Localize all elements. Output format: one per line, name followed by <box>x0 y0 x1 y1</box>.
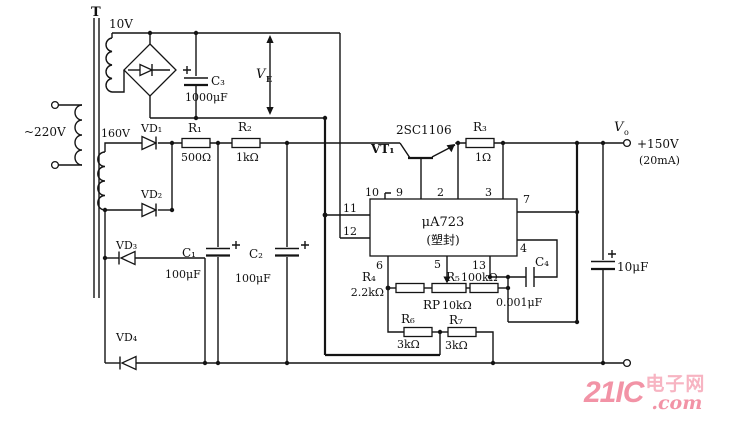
rp-value: 10kΩ <box>442 299 472 312</box>
r1-label: R₁ <box>188 121 202 135</box>
bridge-rectifier <box>124 44 176 96</box>
pin10-mark <box>385 193 391 199</box>
output-terminal-negative <box>624 360 631 367</box>
pin3-label: 3 <box>485 186 492 199</box>
circuit-schematic: T 10V ~220V 160V VD₁ VD₂ VD₃ VD₄ R₁ 500Ω… <box>0 0 733 424</box>
vo-subscript: o <box>624 128 629 137</box>
r5-label: R₅ <box>446 270 460 284</box>
c1-value: 100μF <box>165 268 201 281</box>
ic-name: μA723 <box>422 215 465 230</box>
vt1-part-number: 2SC1106 <box>396 123 452 137</box>
r7-label: R₇ <box>449 313 463 327</box>
diode-vd1 <box>142 137 156 150</box>
pin4-label: 4 <box>520 242 527 255</box>
mains-voltage: ~220V <box>24 125 66 139</box>
vd2-label: VD₂ <box>140 188 162 201</box>
primary-winding <box>75 105 82 165</box>
c3-value: 1000μF <box>185 91 228 104</box>
transformer <box>52 18 112 298</box>
rp-label: RP <box>423 298 440 312</box>
resistor-r3 <box>466 139 494 148</box>
r5-value: 100kΩ <box>461 271 498 284</box>
transistor-vt1 <box>408 144 455 158</box>
r4-value: 2.2kΩ <box>351 286 384 299</box>
capacitor-c2 <box>275 241 309 256</box>
c1-label: C₁ <box>182 246 196 260</box>
vd4-label: VD₄ <box>115 331 138 344</box>
r6-label: R₆ <box>401 312 415 326</box>
vt1-label: VT₁ <box>370 142 395 156</box>
output-current: (20mA) <box>639 154 680 167</box>
pin9-label: 9 <box>396 186 403 199</box>
ac-terminal-bottom <box>52 162 59 169</box>
pin5-label: 5 <box>434 258 441 271</box>
c4-value: 0.001μF <box>496 296 543 309</box>
schematic-page: T 10V ~220V 160V VD₁ VD₂ VD₃ VD₄ R₁ 500Ω… <box>0 0 733 424</box>
labels: T 10V ~220V 160V VD₁ VD₂ VD₃ VD₄ R₁ 500Ω… <box>24 5 680 352</box>
output-cap-value: 10μF <box>617 260 648 274</box>
resistor-r2 <box>232 139 260 148</box>
resistor-r6 <box>404 328 432 337</box>
pin7-label: 7 <box>523 193 530 206</box>
potentiometer-rp <box>432 284 466 293</box>
capacitor-c4 <box>526 267 534 287</box>
diode-vd3 <box>119 252 135 265</box>
pin2-label: 2 <box>437 186 444 199</box>
r1-value: 500Ω <box>181 151 211 164</box>
pin6-label: 6 <box>376 259 383 272</box>
c2-label: C₂ <box>249 247 263 261</box>
ic-package: (塑封) <box>426 232 459 247</box>
diode-vd2 <box>142 204 156 217</box>
r7-value: 3kΩ <box>445 339 468 352</box>
aux-winding-voltage: 10V <box>109 17 133 31</box>
resistor-r5 <box>470 284 498 293</box>
capacitor-c1 <box>206 241 240 256</box>
output-terminal-positive <box>624 140 631 147</box>
r3-label: R₃ <box>473 120 487 134</box>
resistor-r1 <box>182 139 210 148</box>
r2-label: R₂ <box>238 120 252 134</box>
hv-winding-voltage: 160V <box>101 127 131 140</box>
ac-terminal-top <box>52 102 59 109</box>
ve-subscript: E <box>266 74 272 84</box>
transformer-label: T <box>91 5 101 20</box>
resistor-r4 <box>396 284 424 293</box>
pin12-label: 12 <box>343 225 357 238</box>
c2-value: 100μF <box>235 272 271 285</box>
r2-value: 1kΩ <box>236 151 259 164</box>
r3-value: 1Ω <box>475 151 491 164</box>
aux-winding <box>106 38 112 92</box>
c4-label: C₄ <box>535 255 549 269</box>
c3-label: C₃ <box>211 74 225 88</box>
pin11-label: 11 <box>343 202 357 215</box>
resistor-r7 <box>448 328 476 337</box>
vd1-label: VD₁ <box>140 122 162 135</box>
r6-value: 3kΩ <box>397 338 420 351</box>
r4-label: R₄ <box>362 270 376 284</box>
output-voltage: +150V <box>637 137 679 151</box>
vd3-label: VD₃ <box>115 239 137 252</box>
diode-vd4 <box>120 357 136 370</box>
pin10-label: 10 <box>365 186 379 199</box>
